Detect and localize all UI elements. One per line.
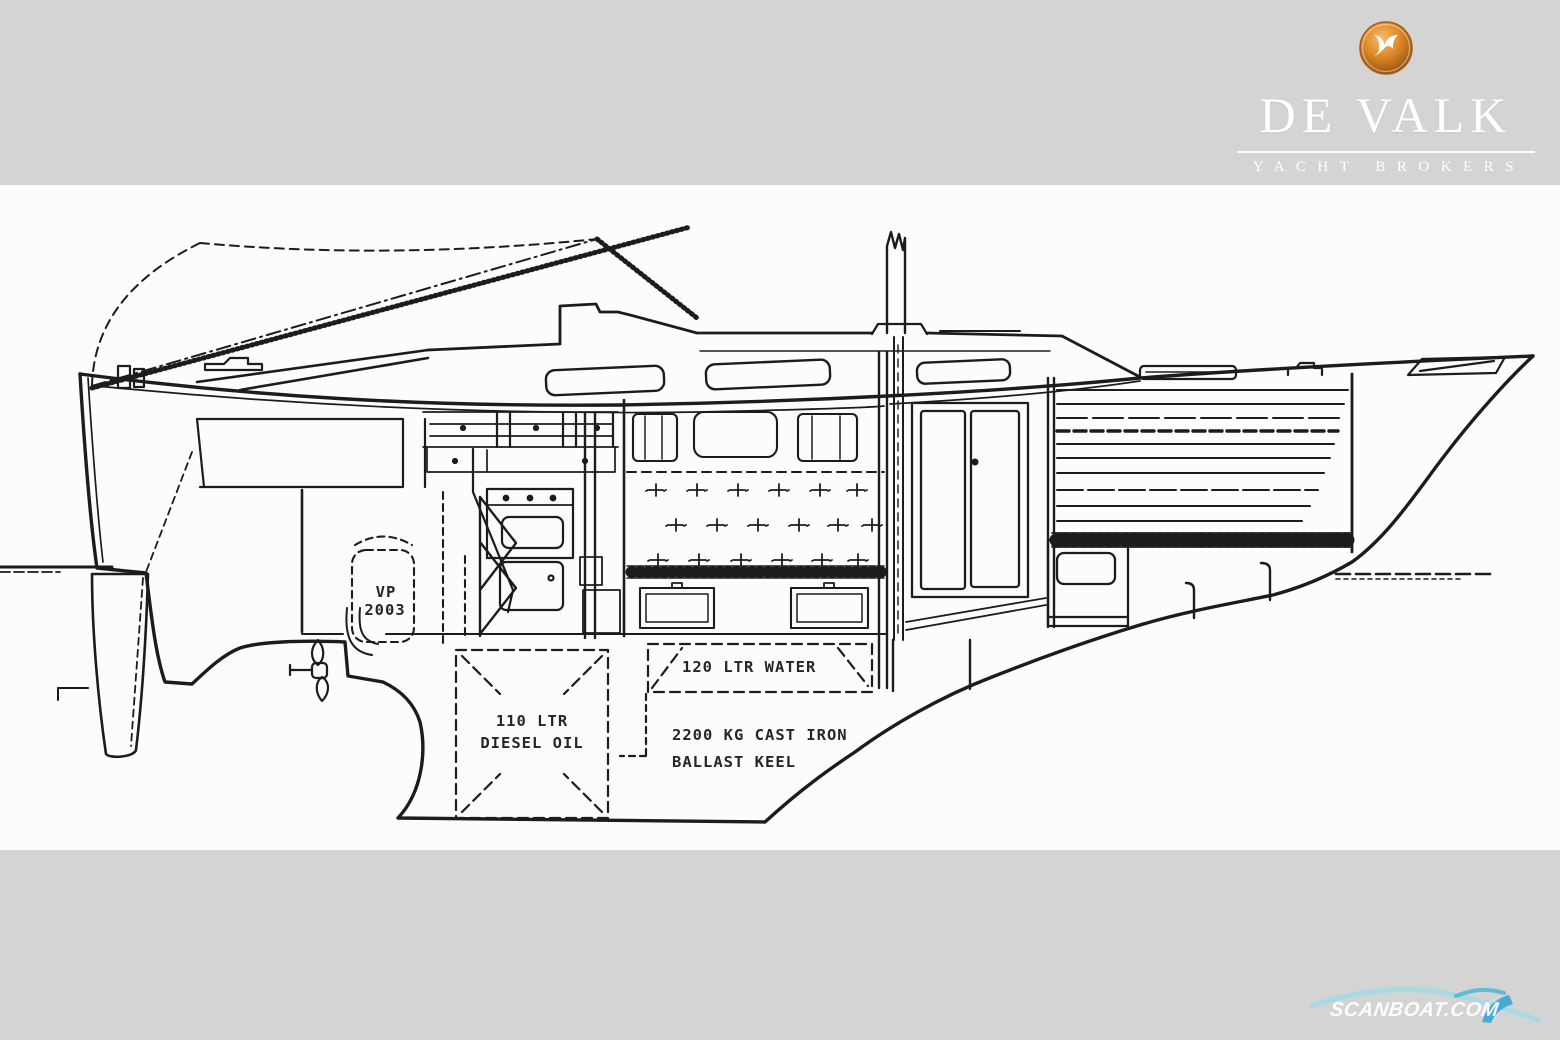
- settee-tufting: [646, 484, 882, 566]
- ballast-label-line2: BALLAST KEEL: [672, 753, 796, 771]
- annotations: VP 2003 110 LTR DIESEL OIL 120 LTR WATER…: [364, 583, 847, 771]
- boat-drawing-area: VP 2003 110 LTR DIESEL OIL 120 LTR WATER…: [0, 185, 1560, 850]
- cabin-windows: [546, 359, 1011, 396]
- brand-subtitle: YACHT BROKERS: [1241, 159, 1537, 176]
- diesel-tank-label-line2: DIESEL OIL: [480, 734, 583, 752]
- ballast-label-line1: 2200 KG CAST IRON: [672, 726, 848, 744]
- falcon-icon: [1358, 20, 1414, 76]
- wardrobe-doors: [906, 378, 1054, 630]
- yacht-profile-line-drawing: VP 2003 110 LTR DIESEL OIL 120 LTR WATER…: [0, 185, 1560, 850]
- footer-band: SCANBOAT.COM: [0, 850, 1560, 1040]
- brand-block: DE VALK YACHT BROKERS: [1235, 20, 1537, 176]
- watermark: SCANBOAT.COM: [1306, 982, 1546, 1034]
- water-tank-label: 120 LTR WATER: [682, 658, 816, 676]
- brand-title: DE VALK: [1235, 86, 1537, 144]
- engine-label-line2: 2003: [364, 601, 405, 619]
- bow-cleat: [1288, 363, 1322, 375]
- rudder: [92, 452, 192, 757]
- brand-divider: [1237, 151, 1535, 153]
- page: DE VALK YACHT BROKERS: [0, 0, 1560, 1040]
- diesel-tank-label-line1: 110 LTR: [496, 712, 568, 730]
- deck-fittings: [118, 357, 1505, 388]
- watermark-text: SCANBOAT.COM: [1328, 999, 1500, 1022]
- v-berth-planking: [1048, 374, 1352, 626]
- engine-label-line1: VP: [376, 583, 397, 601]
- engine-outline: [352, 492, 465, 644]
